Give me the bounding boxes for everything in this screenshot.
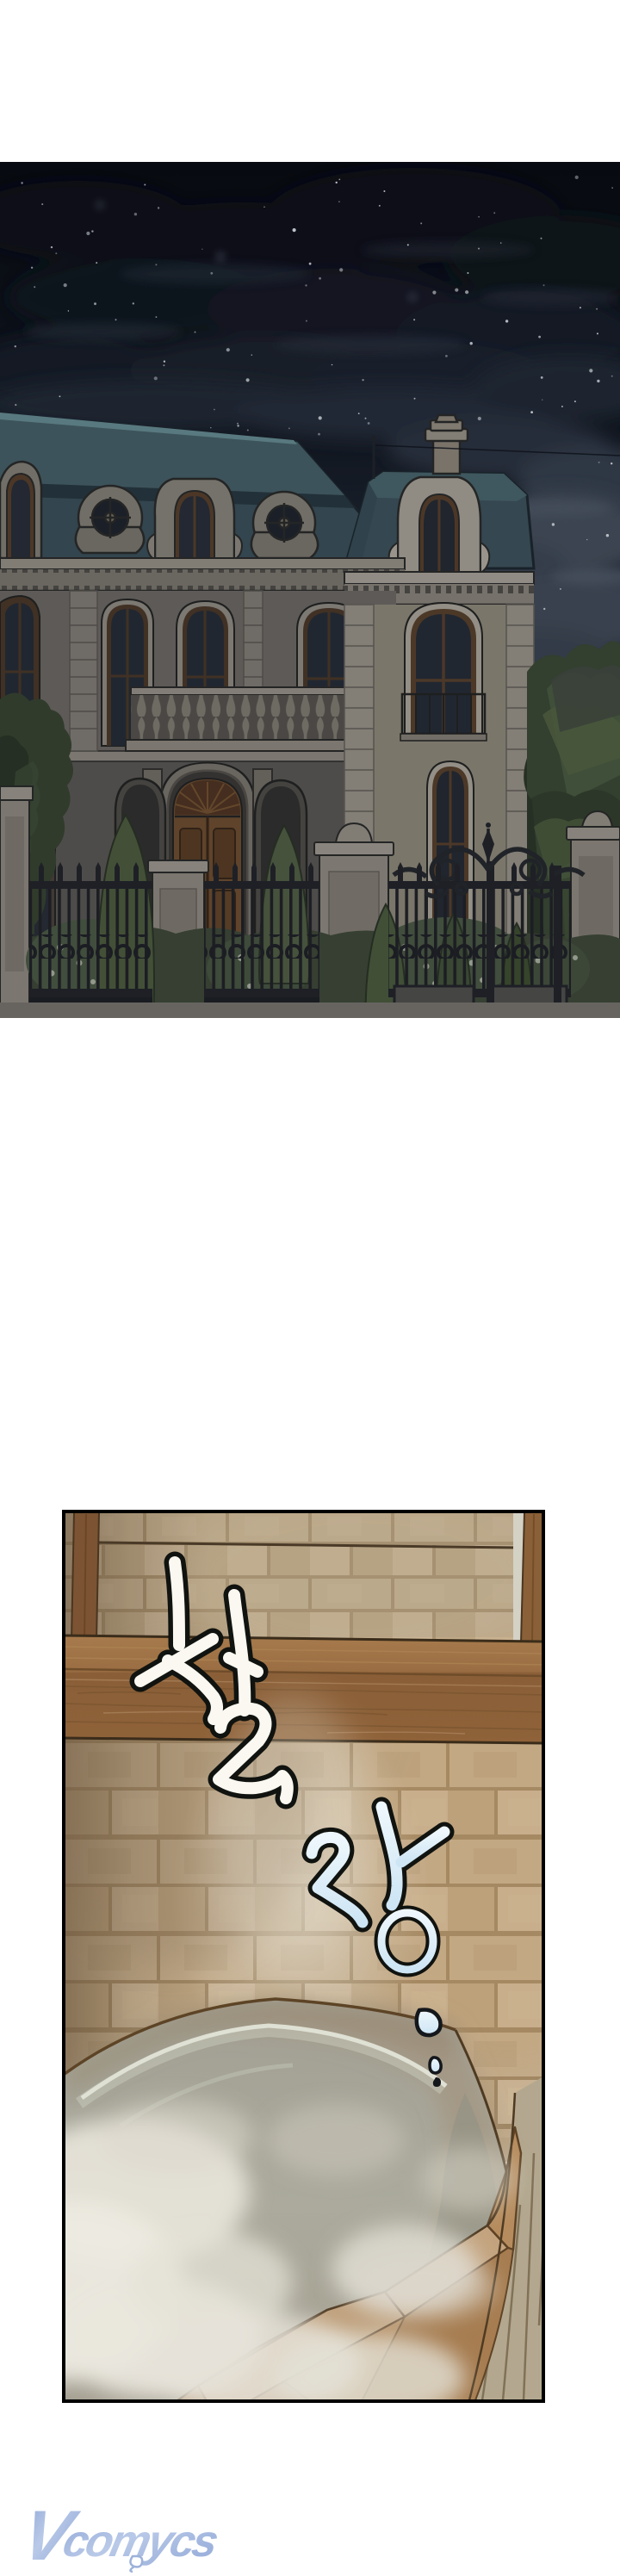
svg-text:comycs: comycs bbox=[59, 2517, 222, 2567]
